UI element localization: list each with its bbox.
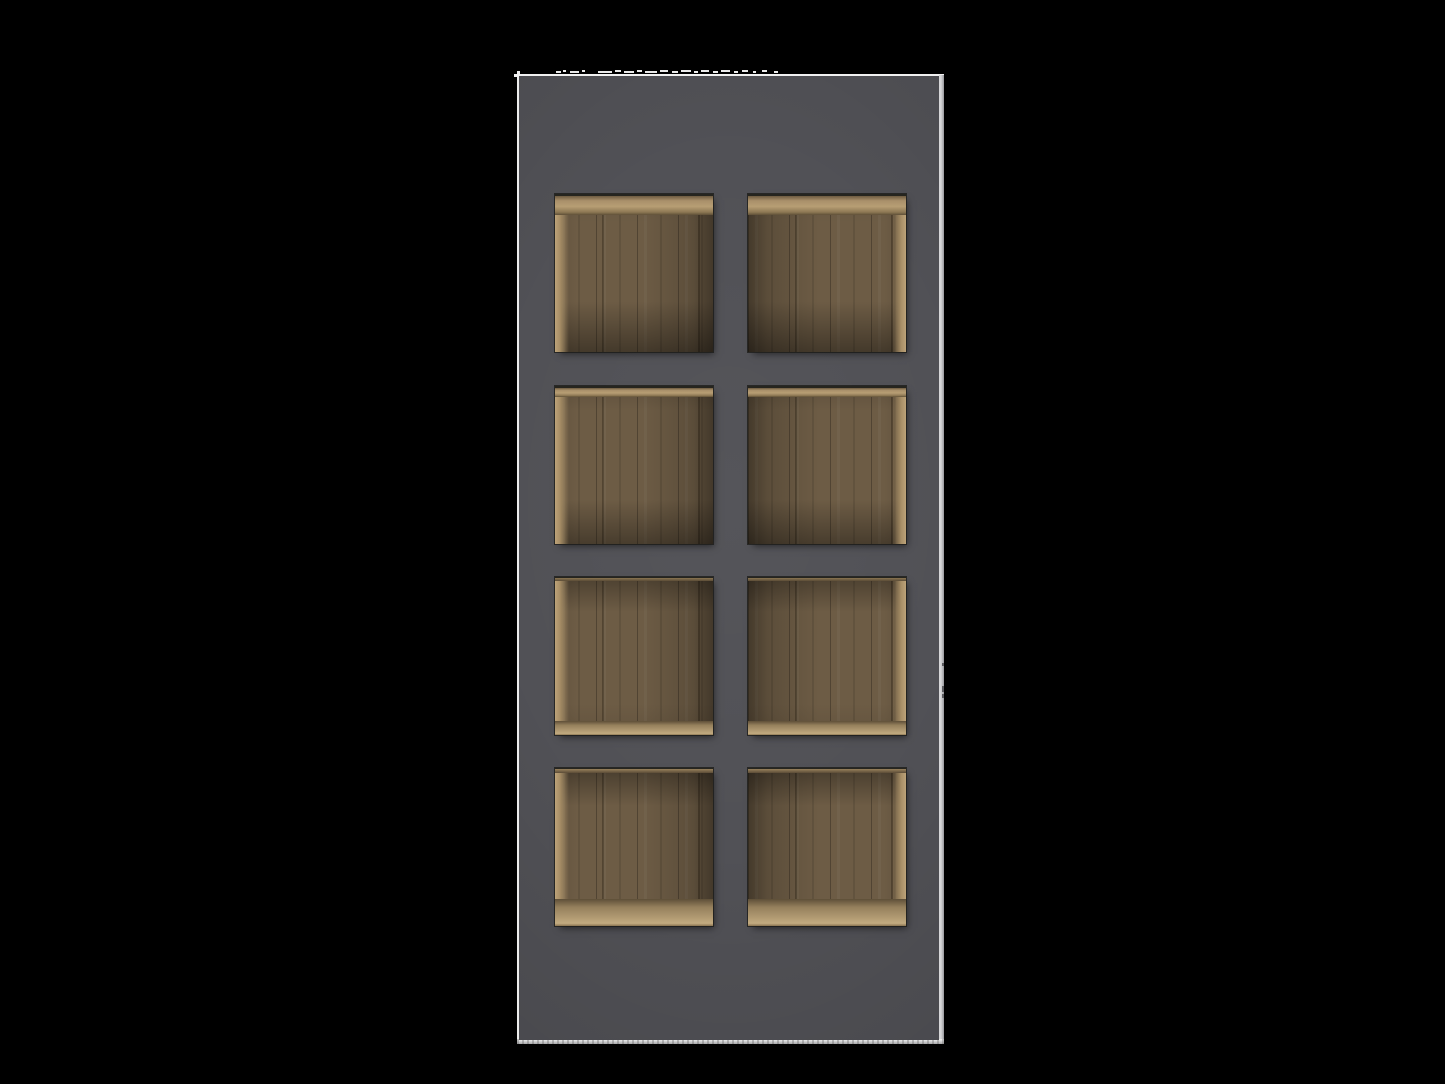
edge-artifact-dash bbox=[637, 70, 642, 72]
edge-artifact-dash bbox=[713, 71, 718, 73]
edge-artifact-dash bbox=[563, 70, 566, 72]
cubby-row2-col2 bbox=[748, 386, 906, 544]
cubby-row1-col2 bbox=[748, 194, 906, 352]
cubby-ceiling bbox=[555, 386, 713, 397]
edge-artifact-dash bbox=[701, 70, 709, 72]
cubby-floor bbox=[555, 721, 713, 735]
edge-artifact-dash bbox=[598, 71, 612, 73]
cubby-right-wall bbox=[892, 194, 906, 352]
edge-artifact-tick bbox=[942, 686, 944, 692]
cubby-ceiling bbox=[748, 577, 906, 581]
cubby-row1-col1 bbox=[555, 194, 713, 352]
edge-artifact-dash bbox=[753, 71, 756, 73]
edge-artifact-dash bbox=[645, 71, 657, 73]
scene bbox=[0, 0, 1445, 1084]
edge-artifact-dash bbox=[762, 70, 767, 72]
cubby-row4-col1 bbox=[555, 768, 713, 926]
cubby-left-wall bbox=[555, 386, 569, 544]
cubby-ceiling bbox=[748, 768, 906, 773]
cubby-back-panel bbox=[555, 577, 713, 735]
edge-artifact-dash bbox=[672, 71, 678, 73]
cubby-row3-col1 bbox=[555, 577, 713, 735]
cubby-ceiling bbox=[555, 577, 713, 581]
edge-artifact-dash bbox=[681, 70, 691, 72]
cubby-ceiling bbox=[748, 386, 906, 397]
edge-artifact-dash bbox=[694, 71, 698, 73]
cubby-left-wall bbox=[555, 194, 569, 352]
cubby-back-panel bbox=[555, 194, 713, 352]
edge-artifact-dash bbox=[742, 70, 748, 72]
edge-artifact-tick bbox=[942, 663, 944, 666]
edge-artifact-dash bbox=[556, 71, 561, 73]
cubby-row3-col2 bbox=[748, 577, 906, 735]
cubby-ceiling bbox=[748, 194, 906, 215]
cabinet-right-edge-highlight bbox=[939, 75, 944, 1042]
edge-artifact-dash bbox=[582, 70, 585, 72]
edge-artifact-dash bbox=[570, 71, 579, 73]
cubby-back-panel bbox=[748, 386, 906, 544]
edge-artifact-dash bbox=[721, 70, 730, 72]
cubby-ceiling bbox=[555, 194, 713, 215]
cubby-floor bbox=[748, 899, 906, 926]
edge-artifact-dash bbox=[615, 70, 621, 72]
cubby-row4-col2 bbox=[748, 768, 906, 926]
cubby-right-wall bbox=[892, 386, 906, 544]
cubby-row2-col1 bbox=[555, 386, 713, 544]
cubby-left-wall bbox=[555, 577, 569, 735]
cubby-floor bbox=[555, 899, 713, 926]
cubby-floor bbox=[748, 721, 906, 735]
edge-artifact-dash bbox=[774, 71, 778, 73]
cubby-right-wall bbox=[892, 577, 906, 735]
cubby-back-panel bbox=[748, 577, 906, 735]
cubby-back-panel bbox=[555, 386, 713, 544]
cubby-back-panel bbox=[748, 194, 906, 352]
edge-artifact-dash bbox=[660, 70, 668, 72]
edge-artifact-tick bbox=[942, 694, 944, 698]
edge-artifact-dash bbox=[624, 71, 634, 73]
edge-artifact-dash bbox=[734, 71, 738, 73]
cubby-ceiling bbox=[555, 768, 713, 773]
